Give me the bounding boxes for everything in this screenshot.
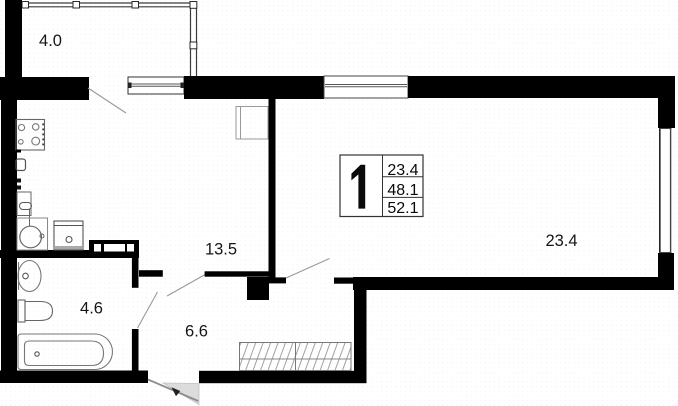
- svg-text:48.1: 48.1: [387, 182, 418, 199]
- svg-text:4.0: 4.0: [39, 32, 62, 50]
- svg-text:13.5: 13.5: [205, 241, 237, 259]
- svg-text:4.6: 4.6: [80, 300, 103, 318]
- svg-text:6.6: 6.6: [185, 323, 208, 341]
- svg-text:23.4: 23.4: [545, 232, 577, 250]
- svg-text:52.1: 52.1: [387, 200, 418, 217]
- svg-text:23.4: 23.4: [387, 162, 418, 179]
